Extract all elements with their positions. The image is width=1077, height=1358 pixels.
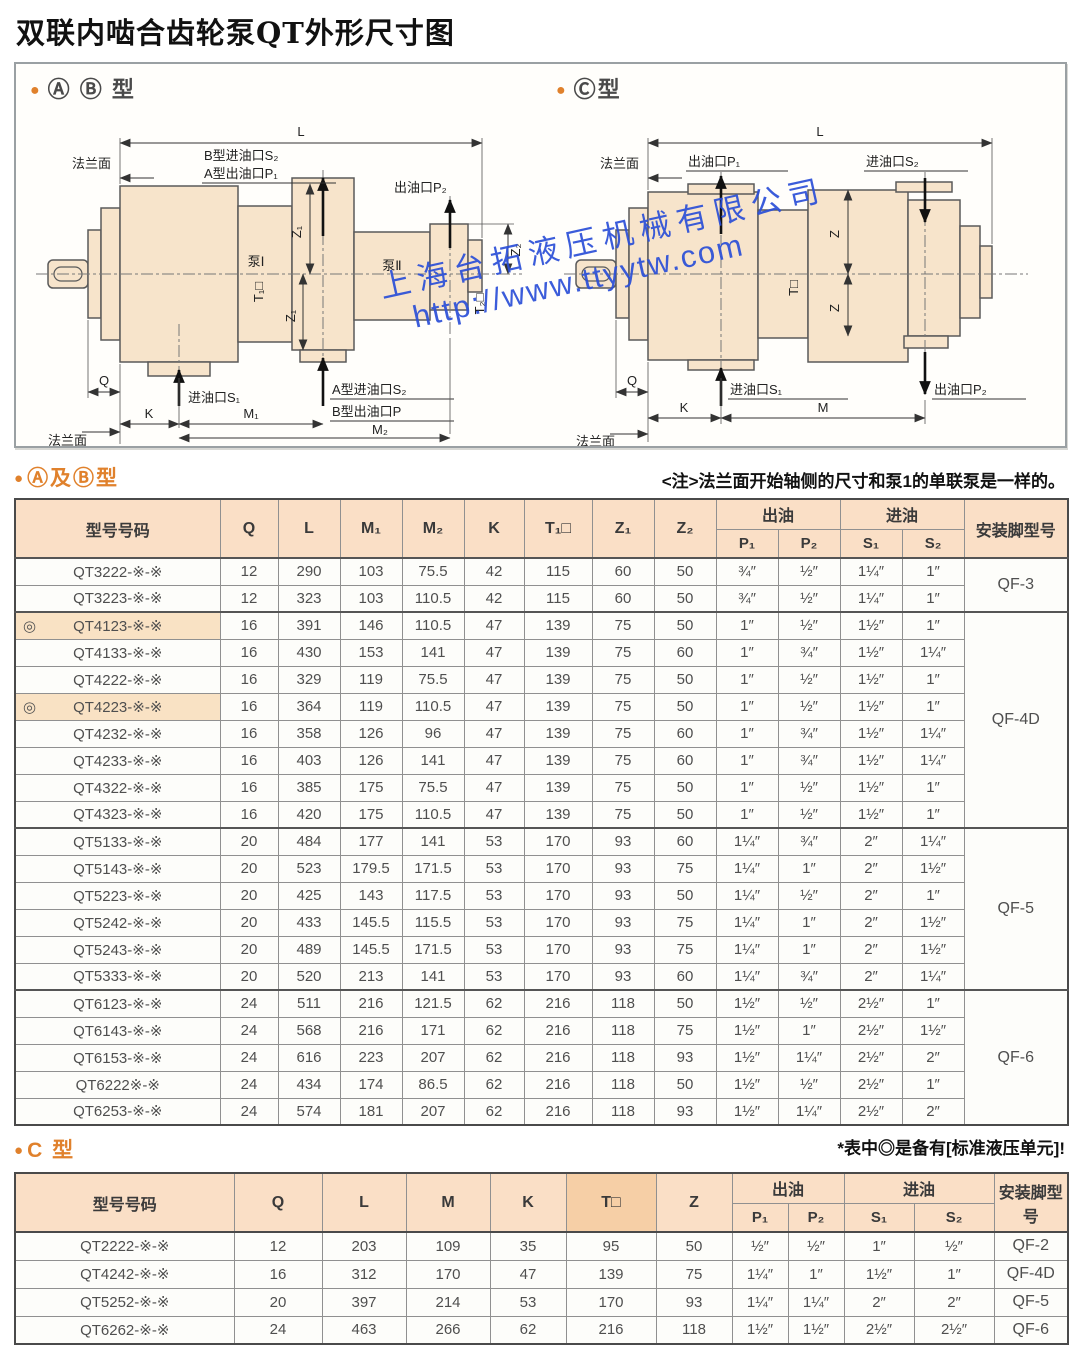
cell-s2: 1″ — [902, 774, 964, 801]
cell-k: 53 — [464, 828, 524, 855]
cell-k: 42 — [464, 558, 524, 585]
cell-k: 53 — [464, 909, 524, 936]
model-cell: QT5223-※-※ — [15, 882, 220, 909]
cell-z1: 75 — [592, 693, 654, 720]
table-row: QT4133-※-※164301531414713975601″¾″1½″1¼″ — [15, 639, 1068, 666]
cell-s2: 2″ — [902, 1044, 964, 1071]
cell-s2: 1½″ — [902, 1017, 964, 1044]
cell-s1: 2″ — [840, 828, 902, 855]
model-number: QT4123-※-※ — [73, 618, 162, 635]
cell-s2: 1¼″ — [902, 963, 964, 990]
cell-l: 523 — [278, 855, 340, 882]
label-a-outlet-p1: A型出油口P₁ — [204, 166, 278, 181]
cell-s1: 1½″ — [840, 612, 902, 639]
cell-s2: 2½″ — [914, 1316, 994, 1344]
cell-m2: 110.5 — [402, 585, 464, 612]
cell-p1: 1¼″ — [716, 936, 778, 963]
cell-p2: ½″ — [778, 612, 840, 639]
cell-m1: 174 — [340, 1071, 402, 1098]
table-ab-body: QT3222-※-※1229010375.5421156050¾″½″1¼″1″… — [15, 558, 1068, 1125]
table-row: QT4222-※-※1632911975.54713975501″½″1½″1″ — [15, 666, 1068, 693]
table-row: QT5243-※-※20489145.5171.55317093751¼″1″2… — [15, 936, 1068, 963]
cell-s1: 2½″ — [840, 1044, 902, 1071]
cell-q: 12 — [220, 585, 278, 612]
cell-m1: 216 — [340, 990, 402, 1017]
model-number: QT6262-※-※ — [80, 1322, 169, 1339]
cell-s1: 2½″ — [840, 1071, 902, 1098]
cell-s1: 2″ — [840, 963, 902, 990]
cell-t1: 170 — [524, 855, 592, 882]
cell-p2: ½″ — [778, 693, 840, 720]
cell-t1: 170 — [524, 882, 592, 909]
col-header-foot: 安装脚型号 — [994, 1173, 1068, 1232]
cell-m: 170 — [406, 1260, 490, 1288]
mounting-foot-cell: QF-4D — [994, 1260, 1068, 1288]
cell-s1: 1″ — [844, 1232, 914, 1260]
cell-z2: 50 — [654, 801, 716, 828]
cell-s2: 1″ — [902, 666, 964, 693]
cell-m1: 145.5 — [340, 909, 402, 936]
cell-p1: 1″ — [716, 639, 778, 666]
cell-p2: ¾″ — [778, 747, 840, 774]
cell-s1: 2½″ — [840, 1017, 902, 1044]
cell-k: 53 — [490, 1288, 566, 1316]
dim-label-z1: Z₁ — [289, 225, 304, 238]
model-number: QT3222-※-※ — [73, 564, 162, 581]
cell-p1: 1″ — [716, 666, 778, 693]
cell-z: 93 — [656, 1288, 732, 1316]
cell-p1: 1¼″ — [716, 963, 778, 990]
cell-s1: 1½″ — [840, 774, 902, 801]
cell-m2: 171.5 — [402, 936, 464, 963]
cell-q: 16 — [220, 666, 278, 693]
cell-l: 312 — [322, 1260, 406, 1288]
cell-m1: 177 — [340, 828, 402, 855]
model-number: QT4233-※-※ — [73, 753, 162, 770]
cell-p1: 1″ — [716, 801, 778, 828]
cell-l: 203 — [322, 1232, 406, 1260]
cell-k: 47 — [464, 693, 524, 720]
cell-m2: 96 — [402, 720, 464, 747]
cell-z2: 60 — [654, 828, 716, 855]
cell-m2: 75.5 — [402, 666, 464, 693]
model-number: QT6123-※-※ — [73, 996, 162, 1013]
cell-p2: ½″ — [778, 882, 840, 909]
cell-m2: 75.5 — [402, 558, 464, 585]
model-cell: QT5133-※-※ — [15, 828, 220, 855]
dim-label-k: K — [145, 406, 154, 421]
cell-q: 24 — [220, 990, 278, 1017]
cell-s2: 1″ — [914, 1260, 994, 1288]
cell-p1: 1½″ — [732, 1316, 788, 1344]
cell-z2: 60 — [654, 747, 716, 774]
dim-label-q: Q — [99, 373, 109, 388]
cell-p1: 1¼″ — [716, 882, 778, 909]
cell-k: 42 — [464, 585, 524, 612]
cell-m1: 223 — [340, 1044, 402, 1071]
cell-q: 24 — [234, 1316, 322, 1344]
cell-k: 62 — [464, 990, 524, 1017]
cell-k: 53 — [464, 855, 524, 882]
cell-m2: 171.5 — [402, 855, 464, 882]
model-cell: QT2222-※-※ — [15, 1232, 234, 1260]
model-cell: QT5333-※-※ — [15, 963, 220, 990]
standard-unit-mark: ◎ — [23, 698, 36, 716]
cell-p2: ½″ — [778, 990, 840, 1017]
cell-l: 329 — [278, 666, 340, 693]
table-row: QT6143-※-※2456821617162216118751½″1″2½″1… — [15, 1017, 1068, 1044]
cell-s2: 1″ — [902, 558, 964, 585]
mounting-foot-cell: QF-4D — [964, 612, 1068, 828]
cell-s1: 2½″ — [840, 1098, 902, 1125]
cell-z: 118 — [656, 1316, 732, 1344]
cell-t1: 139 — [524, 693, 592, 720]
cell-l: 568 — [278, 1017, 340, 1044]
cell-p1: 1″ — [716, 693, 778, 720]
cell-l: 520 — [278, 963, 340, 990]
cell-z2: 75 — [654, 909, 716, 936]
table-row: QT4323-※-※16420175110.54713975501″½″1½″1… — [15, 801, 1068, 828]
label-a-inlet-s2: A型进油口S₂ — [332, 382, 406, 397]
cell-m2: 110.5 — [402, 612, 464, 639]
col-header-p1: P₁ — [732, 1203, 788, 1232]
col-group-out: 出油 — [732, 1173, 844, 1203]
cell-z2: 50 — [654, 666, 716, 693]
cell-z2: 75 — [654, 1017, 716, 1044]
section-title-ab: ●Ⓐ及Ⓑ型 — [14, 462, 119, 492]
cell-s2: 1¼″ — [902, 747, 964, 774]
dim-label-m1: M₁ — [243, 406, 259, 421]
cell-m: 266 — [406, 1316, 490, 1344]
model-number: QT4322-※-※ — [73, 780, 162, 797]
dim-label-z1-lower: Z₁ — [283, 309, 298, 322]
model-number: QT5252-※-※ — [80, 1294, 169, 1311]
cell-z1: 118 — [592, 1071, 654, 1098]
cell-q: 20 — [220, 963, 278, 990]
col-group-in: 进油 — [840, 499, 964, 529]
cell-k: 62 — [464, 1017, 524, 1044]
cell-q: 24 — [220, 1044, 278, 1071]
cell-s1: 1½″ — [840, 639, 902, 666]
cell-p1: 1¼″ — [716, 909, 778, 936]
cell-t1: 139 — [524, 639, 592, 666]
cell-s2: 1″ — [902, 693, 964, 720]
model-number: QT5133-※-※ — [73, 834, 162, 851]
cell-t1: 216 — [524, 990, 592, 1017]
model-number: QT4223-※-※ — [73, 699, 162, 716]
cell-t1: 170 — [524, 936, 592, 963]
model-number: QT5242-※-※ — [73, 915, 162, 932]
mounting-foot-cell: QF-2 — [994, 1232, 1068, 1260]
cell-l: 616 — [278, 1044, 340, 1071]
cell-p1: 1½″ — [716, 990, 778, 1017]
cell-p2: ½″ — [778, 666, 840, 693]
cell-z1: 93 — [592, 963, 654, 990]
cell-p1: ¾″ — [716, 558, 778, 585]
cell-m2: 207 — [402, 1098, 464, 1125]
model-number: QT4242-※-※ — [80, 1266, 169, 1283]
cell-m1: 181 — [340, 1098, 402, 1125]
orange-bullet-icon: ● — [14, 1142, 25, 1159]
model-cell: QT4242-※-※ — [15, 1260, 234, 1288]
model-cell: QT6262-※-※ — [15, 1316, 234, 1344]
col-header-z2: Z₂ — [654, 499, 716, 558]
table-row: QT3222-※-※1229010375.5421156050¾″½″1¼″1″… — [15, 558, 1068, 585]
cell-p1: 1¼″ — [732, 1260, 788, 1288]
cell-l: 425 — [278, 882, 340, 909]
label-inlet-s2: 进油口S₂ — [866, 154, 919, 169]
cell-z1: 75 — [592, 774, 654, 801]
model-cell: QT5252-※-※ — [15, 1288, 234, 1316]
cell-m2: 171 — [402, 1017, 464, 1044]
cell-l: 574 — [278, 1098, 340, 1125]
cell-s1: 1½″ — [840, 801, 902, 828]
dim-label-L: L — [816, 124, 823, 139]
model-number: QT4323-※-※ — [73, 806, 162, 823]
cell-p2: 1″ — [778, 909, 840, 936]
cell-l: 403 — [278, 747, 340, 774]
cell-s1: 1¼″ — [840, 585, 902, 612]
table-row: QT4242-※-※1631217047139751¼″1″1½″1″QF-4D — [15, 1260, 1068, 1288]
cell-p2: ½″ — [788, 1232, 844, 1260]
label-flange-top: 法兰面 — [72, 156, 111, 171]
cell-p1: 1″ — [716, 774, 778, 801]
cell-z2: 93 — [654, 1098, 716, 1125]
cell-p2: ½″ — [778, 558, 840, 585]
cell-s2: 2″ — [914, 1288, 994, 1316]
model-cell: QT3222-※-※ — [15, 558, 220, 585]
cell-q: 24 — [220, 1071, 278, 1098]
cell-q: 12 — [220, 558, 278, 585]
cell-p2: 1¼″ — [778, 1098, 840, 1125]
label-b-outlet-p: B型出油口P — [332, 404, 401, 419]
cell-m1: 146 — [340, 612, 402, 639]
table-row: QT5223-※-※20425143117.55317093501¼″½″2″1… — [15, 882, 1068, 909]
cell-l: 433 — [278, 909, 340, 936]
cell-t: 216 — [566, 1316, 656, 1344]
cell-p2: 1¼″ — [778, 1044, 840, 1071]
cell-q: 16 — [220, 747, 278, 774]
cell-l: 290 — [278, 558, 340, 585]
cell-q: 16 — [220, 801, 278, 828]
model-cell: QT4323-※-※ — [15, 801, 220, 828]
cell-k: 47 — [464, 612, 524, 639]
cell-m1: 153 — [340, 639, 402, 666]
cell-z2: 60 — [654, 963, 716, 990]
orange-bullet-icon: ● — [14, 470, 25, 487]
cell-m1: 175 — [340, 774, 402, 801]
cell-q: 12 — [234, 1232, 322, 1260]
dim-label-q: Q — [627, 373, 637, 388]
cell-t1: 139 — [524, 612, 592, 639]
cell-z2: 60 — [654, 639, 716, 666]
cell-s1: 1½″ — [840, 693, 902, 720]
cell-m1: 103 — [340, 585, 402, 612]
cell-t1: 170 — [524, 909, 592, 936]
cell-l: 420 — [278, 801, 340, 828]
cell-z2: 50 — [654, 774, 716, 801]
cell-m2: 141 — [402, 828, 464, 855]
col-header-model: 型号号码 — [15, 499, 220, 558]
cell-m1: 126 — [340, 720, 402, 747]
cell-s2: 1¼″ — [902, 639, 964, 666]
cell-p1: 1½″ — [716, 1044, 778, 1071]
dim-label-z-lower: Z — [827, 304, 842, 312]
col-header-p2: P₂ — [778, 529, 840, 558]
model-cell: QT4222-※-※ — [15, 666, 220, 693]
cell-l: 358 — [278, 720, 340, 747]
cell-p1: 1½″ — [716, 1071, 778, 1098]
mounting-foot-cell: QF-6 — [964, 990, 1068, 1125]
model-cell: QT4133-※-※ — [15, 639, 220, 666]
label-inlet-s1: 进油口S₁ — [188, 390, 241, 405]
table-row: QT6153-※-※2461622320762216118931½″1¼″2½″… — [15, 1044, 1068, 1071]
model-cell: QT4232-※-※ — [15, 720, 220, 747]
col-header-s2: S₂ — [902, 529, 964, 558]
col-group-in: 进油 — [844, 1173, 994, 1203]
cell-m2: 110.5 — [402, 801, 464, 828]
cell-z1: 93 — [592, 828, 654, 855]
catalog-page: 双联内啮合齿轮泵QT外形尺寸图 ●Ⓐ Ⓑ 型 ●Ⓒ型 — [0, 0, 1077, 1345]
cell-q: 16 — [220, 693, 278, 720]
model-number: QT6153-※-※ — [73, 1050, 162, 1067]
col-header-p2: P₂ — [788, 1203, 844, 1232]
cell-z1: 75 — [592, 801, 654, 828]
cell-m2: 86.5 — [402, 1071, 464, 1098]
model-number: QT6143-※-※ — [73, 1023, 162, 1040]
model-cell: QT6222※-※ — [15, 1071, 220, 1098]
cell-z1: 75 — [592, 666, 654, 693]
cell-s2: 1½″ — [902, 936, 964, 963]
cell-z1: 60 — [592, 585, 654, 612]
cell-k: 53 — [464, 963, 524, 990]
cell-p1: 1½″ — [716, 1098, 778, 1125]
cell-m1: 103 — [340, 558, 402, 585]
cell-p2: 1″ — [778, 855, 840, 882]
cell-t1: 139 — [524, 666, 592, 693]
cell-z2: 50 — [654, 990, 716, 1017]
cell-k: 62 — [464, 1098, 524, 1125]
pump-body-profile — [48, 178, 482, 376]
cell-t: 95 — [566, 1232, 656, 1260]
cell-l: 463 — [322, 1316, 406, 1344]
flange-note: <注>法兰面开始轴侧的尺寸和泵1的单联泵是一样的。 — [662, 467, 1065, 492]
cell-l: 430 — [278, 639, 340, 666]
table-row: ◎QT4223-※-※16364119110.54713975501″½″1½″… — [15, 693, 1068, 720]
model-number: QT5143-※-※ — [73, 861, 162, 878]
cell-m2: 121.5 — [402, 990, 464, 1017]
standard-unit-mark: ◎ — [23, 617, 36, 635]
cell-t1: 170 — [524, 828, 592, 855]
cell-z2: 50 — [654, 1071, 716, 1098]
cell-m: 214 — [406, 1288, 490, 1316]
cell-l: 323 — [278, 585, 340, 612]
model-number: QT5333-※-※ — [73, 968, 162, 985]
cell-s2: 1¼″ — [902, 720, 964, 747]
cell-s2: 1½″ — [902, 909, 964, 936]
label-flange-bottom: 法兰面 — [576, 434, 615, 446]
cell-s1: 2″ — [840, 909, 902, 936]
dim-label-z2: Z₂ — [508, 244, 523, 257]
cell-t1: 115 — [524, 585, 592, 612]
cell-s2: 1½″ — [902, 855, 964, 882]
label-b-inlet-s2: B型进油口S₂ — [204, 148, 278, 163]
section-title-c: ●C 型 — [14, 1134, 75, 1164]
label-flange-top: 法兰面 — [600, 156, 639, 171]
cell-p2: ½″ — [778, 801, 840, 828]
cell-l: 364 — [278, 693, 340, 720]
cell-s2: 1″ — [902, 990, 964, 1017]
cell-s1: 2½″ — [840, 990, 902, 1017]
pump-body-profile — [576, 182, 992, 370]
cell-q: 24 — [220, 1017, 278, 1044]
table-row: QT2222-※-※12203109359550½″½″1″½″QF-2 — [15, 1232, 1068, 1260]
cell-p1: 1½″ — [716, 1017, 778, 1044]
table-row: QT5252-※-※2039721453170931¼″1¼″2″2″QF-5 — [15, 1288, 1068, 1316]
dimension-table-ab: 型号号码 Q L M₁ M₂ K T₁□ Z₁ Z₂ 出油 进油 安装脚型号 P… — [14, 498, 1069, 1126]
table-row: QT4322-※-※1638517575.54713975501″½″1½″1″ — [15, 774, 1068, 801]
cell-m1: 119 — [340, 666, 402, 693]
pump-drawing-ab: L 法兰面 B型进油口S₂ A型出油口P₁ 出油口P₂ Z₁ Z₁ T₁□ 泵Ⅰ… — [20, 94, 535, 446]
table-row: QT6123-※-※24511216121.562216118501½″½″2½… — [15, 990, 1068, 1017]
cell-m1: 216 — [340, 1017, 402, 1044]
model-cell: QT4233-※-※ — [15, 747, 220, 774]
cell-p2: ¾″ — [778, 828, 840, 855]
cell-k: 62 — [464, 1071, 524, 1098]
table-row: QT6222※-※2443417486.562216118501½″½″2½″1… — [15, 1071, 1068, 1098]
cell-k: 62 — [464, 1044, 524, 1071]
cell-m: 109 — [406, 1232, 490, 1260]
dim-label-L: L — [297, 124, 304, 139]
cell-m2: 117.5 — [402, 882, 464, 909]
cell-m1: 145.5 — [340, 936, 402, 963]
model-cell: QT6153-※-※ — [15, 1044, 220, 1071]
cell-m1: 119 — [340, 693, 402, 720]
table-row: QT5242-※-※20433145.5115.55317093751¼″1″2… — [15, 909, 1068, 936]
cell-t1: 216 — [524, 1098, 592, 1125]
cell-p2: 1½″ — [788, 1316, 844, 1344]
model-cell: ◎QT4123-※-※ — [15, 612, 220, 639]
cell-k: 47 — [464, 720, 524, 747]
cell-m2: 141 — [402, 639, 464, 666]
model-cell: QT6253-※-※ — [15, 1098, 220, 1125]
model-number: QT4222-※-※ — [73, 672, 162, 689]
cell-t1: 139 — [524, 747, 592, 774]
table-row: QT6262-※-※24463266622161181½″1½″2½″2½″QF… — [15, 1316, 1068, 1344]
model-cell: QT5143-※-※ — [15, 855, 220, 882]
cell-t1: 139 — [524, 801, 592, 828]
cell-t1: 139 — [524, 774, 592, 801]
cell-q: 16 — [220, 612, 278, 639]
cell-t1: 216 — [524, 1017, 592, 1044]
col-header-l: L — [322, 1173, 406, 1232]
col-header-k: K — [490, 1173, 566, 1232]
cell-z1: 118 — [592, 1017, 654, 1044]
col-header-q: Q — [234, 1173, 322, 1232]
col-header-z1: Z₁ — [592, 499, 654, 558]
dim-label-t1: T₁□ — [251, 282, 266, 302]
cell-z2: 50 — [654, 612, 716, 639]
cell-s1: 2″ — [840, 882, 902, 909]
dim-label-t2: T₂□ — [472, 293, 487, 314]
cell-t1: 216 — [524, 1071, 592, 1098]
cell-k: 47 — [464, 639, 524, 666]
col-header-z: Z — [656, 1173, 732, 1232]
cell-s1: 2″ — [844, 1288, 914, 1316]
dim-label-t: T□ — [786, 280, 801, 296]
cell-p1: ½″ — [732, 1232, 788, 1260]
dim-label-k: K — [680, 400, 689, 415]
